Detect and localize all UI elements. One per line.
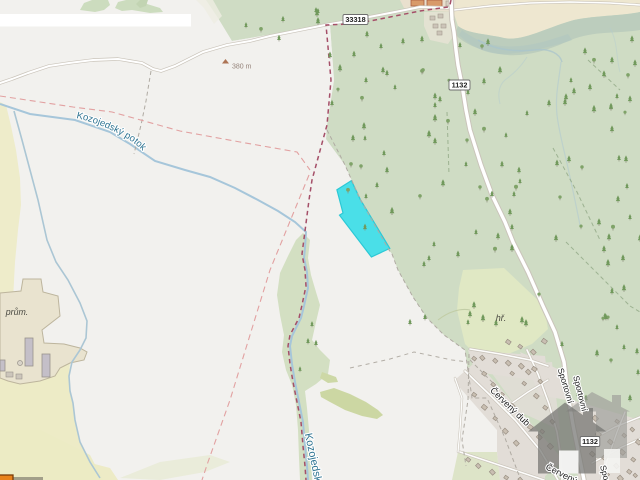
- svg-text:1132: 1132: [582, 437, 598, 446]
- svg-text:1132: 1132: [452, 81, 468, 90]
- svg-text:33318: 33318: [345, 15, 365, 24]
- svg-text:prům.: prům.: [5, 307, 29, 317]
- svg-text:380 m: 380 m: [232, 64, 252, 71]
- svg-text:hř.: hř.: [496, 313, 507, 323]
